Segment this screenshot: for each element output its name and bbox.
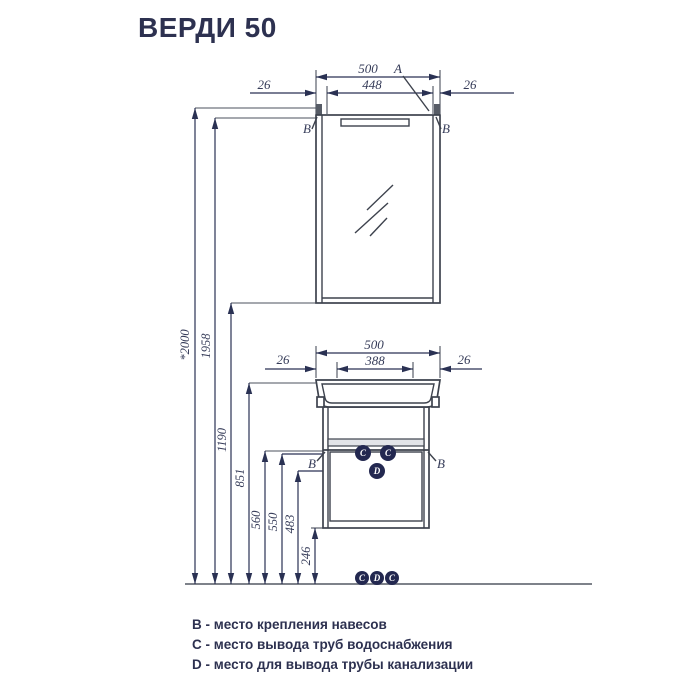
mirror-width-inner: 448 xyxy=(362,77,382,92)
vanity-gap-right: 26 xyxy=(458,352,472,367)
mount-bracket-left xyxy=(316,104,322,115)
drain-port-d-label: D xyxy=(373,466,381,476)
vanity-cabinet: B B C C D xyxy=(308,380,445,528)
dim-246: 246 xyxy=(299,546,313,566)
mirror-width-total: 500 xyxy=(358,61,378,76)
vanity-dimensions: 500 388 26 26 xyxy=(265,337,482,378)
mirror-b-right: B xyxy=(442,121,450,136)
vanity-b-left: B xyxy=(308,456,316,471)
mirror-b-left: B xyxy=(303,121,311,136)
basin-tab-left xyxy=(317,397,324,407)
legend: B - место крепления навесов C - место вы… xyxy=(192,615,473,675)
floor-port-c1: C xyxy=(359,573,366,583)
floor-ports: C D C xyxy=(355,571,399,585)
legend-item-c: C - место вывода труб водоснабжения xyxy=(192,635,473,655)
water-port-c1-label: C xyxy=(360,448,367,458)
dimension-drawing: *2000 1958 1190 851 560 550 483 246 500 … xyxy=(0,0,700,700)
dim-1958: 1958 xyxy=(199,333,213,359)
dim-851: 851 xyxy=(233,469,247,488)
dim-1190: 1190 xyxy=(215,427,229,452)
vanity-b-right: B xyxy=(437,456,445,471)
dim-total-height: *2000 xyxy=(178,329,192,361)
mount-bracket-right xyxy=(434,104,440,115)
mirror-cabinet: B B xyxy=(303,104,450,303)
vanity-width-inner: 388 xyxy=(364,353,385,368)
technical-drawing-page: ВЕРДИ 50 xyxy=(0,0,700,700)
label-a: A xyxy=(393,61,402,76)
dim-483: 483 xyxy=(283,515,297,534)
mirror-gap-right: 26 xyxy=(464,77,478,92)
vanity-gap-left: 26 xyxy=(277,352,291,367)
vanity-width-total: 500 xyxy=(364,337,384,352)
vertical-dimensions: *2000 1958 1190 851 560 550 483 246 xyxy=(178,108,315,584)
water-port-c2-label: C xyxy=(385,448,392,458)
dim-550: 550 xyxy=(266,512,280,532)
legend-item-b: B - место крепления навесов xyxy=(192,615,473,635)
basin-tab-right xyxy=(432,397,439,407)
legend-item-d: D - место для вывода трубы канализации xyxy=(192,655,473,675)
mirror-body xyxy=(316,115,440,303)
floor-port-c2: C xyxy=(389,573,396,583)
back-rail xyxy=(328,439,424,446)
mirror-gap-left: 26 xyxy=(258,77,272,92)
mirror-dimensions: 500 448 26 26 A xyxy=(250,61,514,114)
floor-port-d: D xyxy=(373,573,381,583)
dim-560: 560 xyxy=(249,510,263,530)
